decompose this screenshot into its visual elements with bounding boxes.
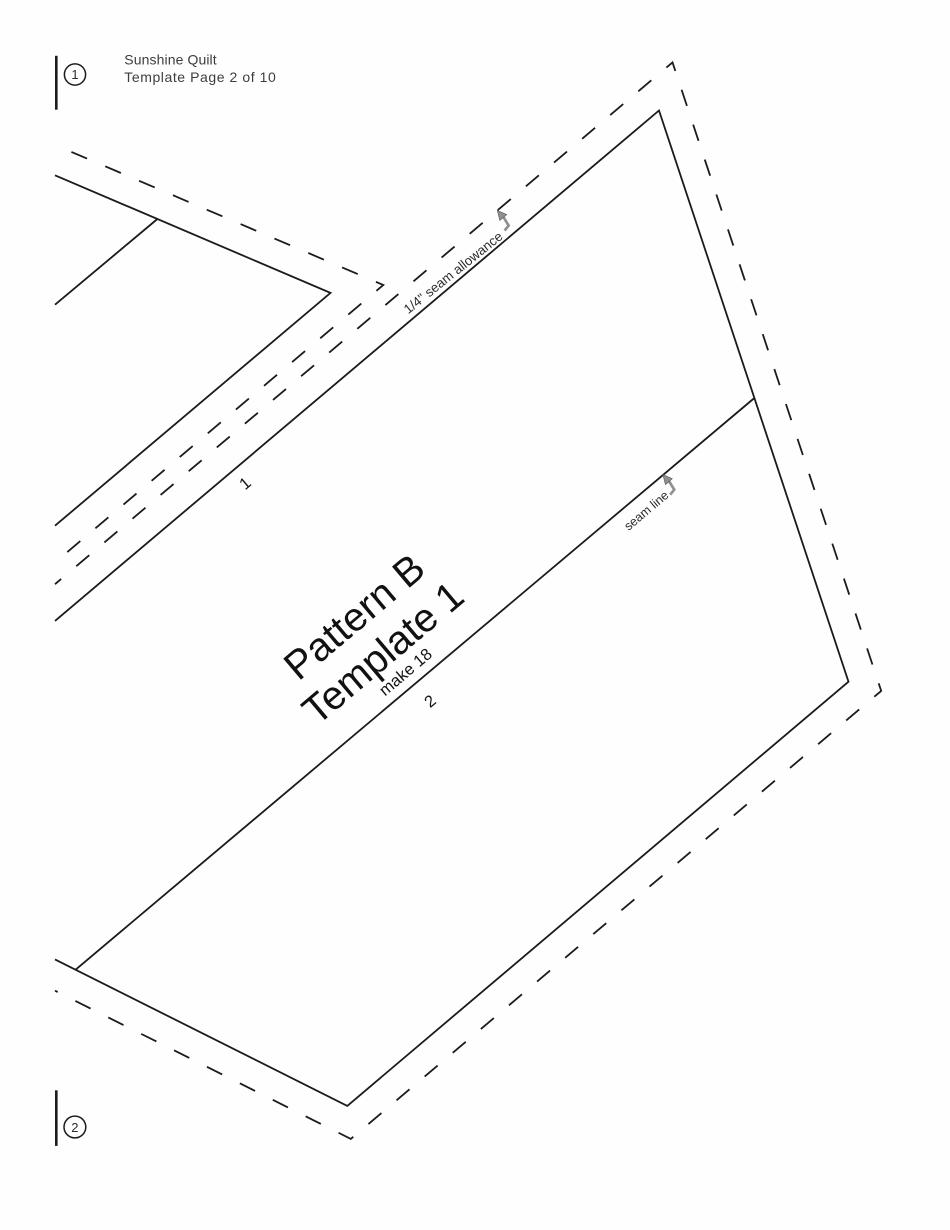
svg-text:Template Page 2 of 10: Template Page 2 of 10 bbox=[124, 69, 276, 85]
svg-text:1: 1 bbox=[71, 67, 78, 82]
svg-text:2: 2 bbox=[71, 1120, 78, 1135]
svg-text:Sunshine Quilt: Sunshine Quilt bbox=[124, 52, 216, 68]
